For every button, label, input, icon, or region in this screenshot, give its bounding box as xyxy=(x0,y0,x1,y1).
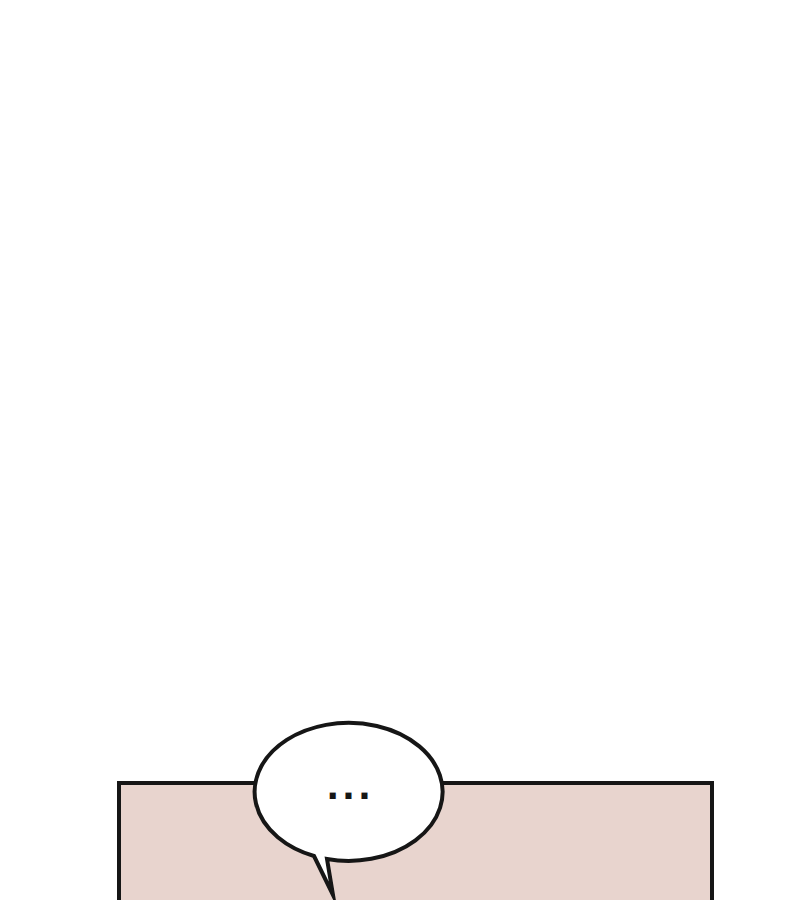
comic-page: ... xyxy=(0,0,800,900)
speech-bubble-text: ... xyxy=(326,767,374,807)
comic-art: ... xyxy=(0,0,800,900)
